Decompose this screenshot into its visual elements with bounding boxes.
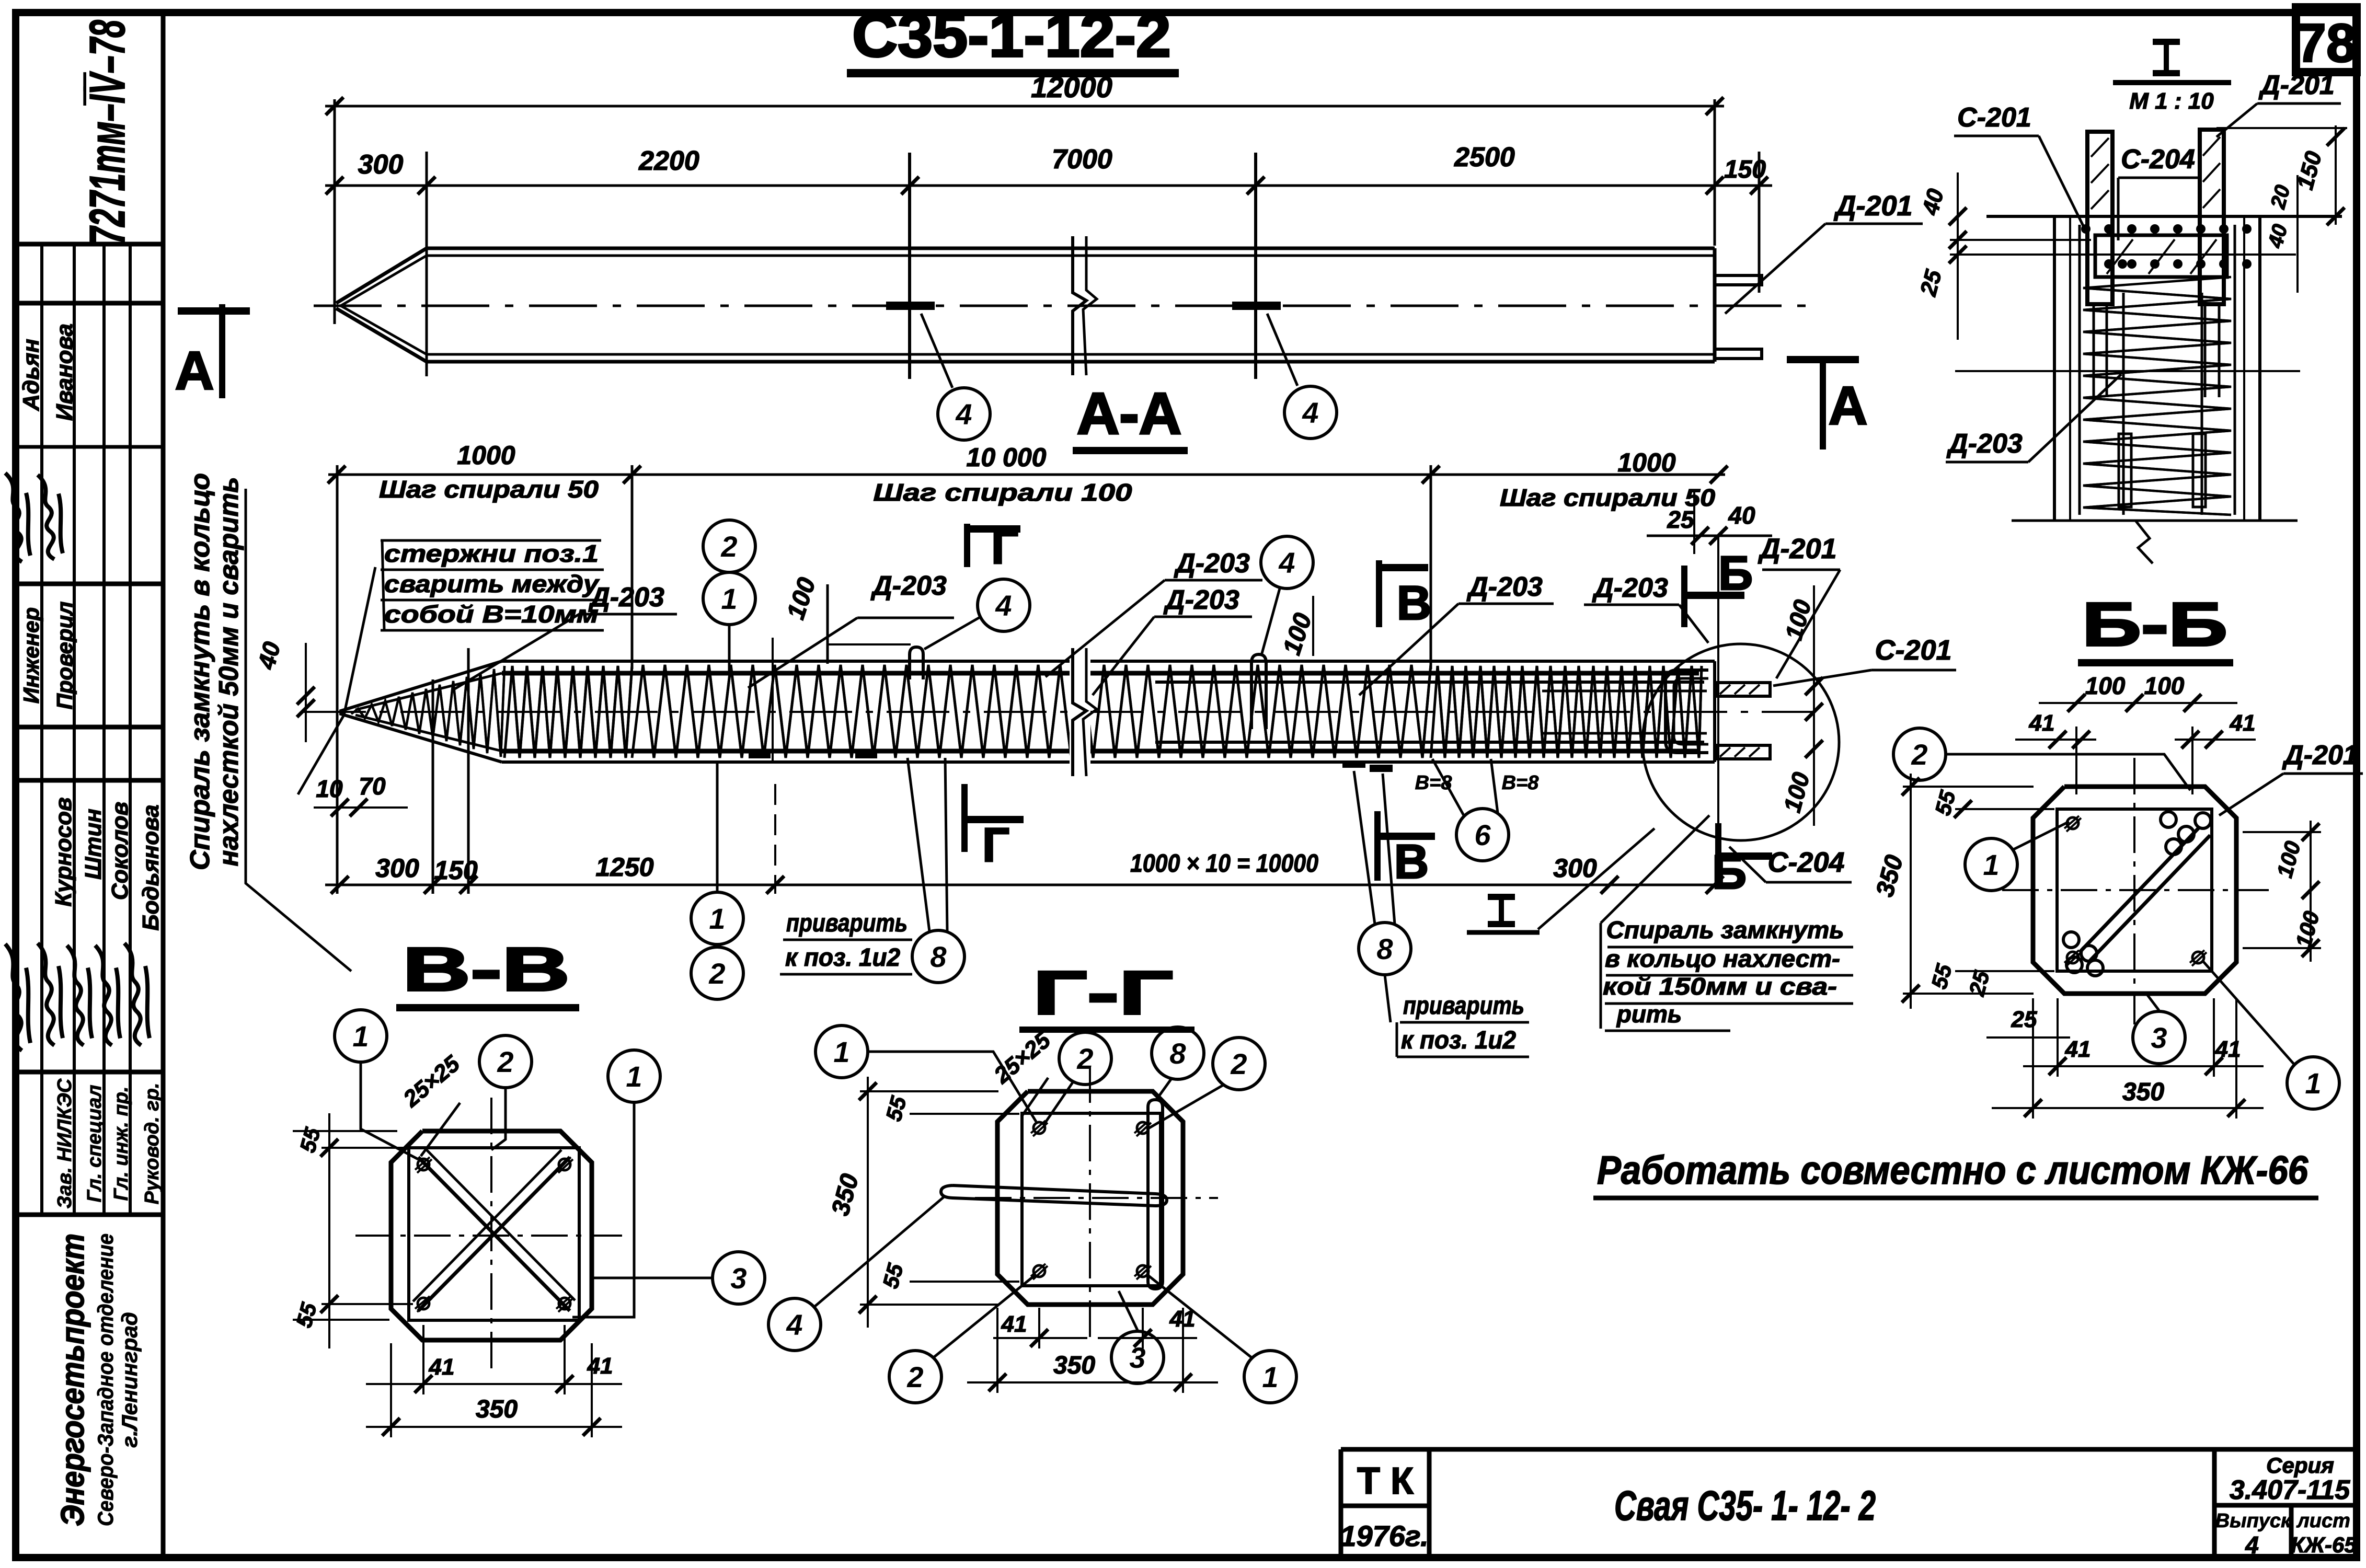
svg-text:1: 1 [2305, 1067, 2321, 1100]
svg-text:Д-203: Д-203 [588, 582, 664, 613]
svg-text:7000: 7000 [1052, 144, 1112, 175]
svg-text:В-В: В-В [403, 935, 570, 1004]
svg-text:А-А: А-А [1077, 381, 1181, 446]
svg-text:Иванова: Иванова [52, 324, 77, 421]
svg-text:Т К: Т К [1357, 1460, 1414, 1502]
svg-text:10 000: 10 000 [967, 443, 1047, 472]
svg-text:300: 300 [358, 149, 404, 180]
svg-text:Курносов: Курносов [51, 797, 76, 906]
svg-text:2: 2 [708, 957, 725, 990]
svg-text:1: 1 [626, 1060, 642, 1093]
svg-text:Выпуск: Выпуск [2215, 1510, 2292, 1532]
svg-text:41: 41 [2065, 1036, 2091, 1062]
svg-text:70: 70 [359, 773, 386, 800]
svg-text:41: 41 [2230, 710, 2256, 736]
svg-text:КЖ-65: КЖ-65 [2291, 1532, 2357, 1557]
svg-text:Инженер: Инженер [19, 607, 43, 704]
svg-text:8: 8 [1169, 1037, 1186, 1070]
svg-text:1: 1 [1262, 1361, 1278, 1393]
svg-text:Д-201: Д-201 [1758, 533, 1836, 564]
svg-text:1: 1 [833, 1035, 849, 1068]
svg-text:1976г.: 1976г. [1340, 1519, 1428, 1552]
svg-text:С-204: С-204 [2121, 144, 2195, 175]
svg-text:150: 150 [1724, 156, 1766, 183]
svg-text:Свая С35- 1- 12- 2: Свая С35- 1- 12- 2 [1614, 1482, 1876, 1529]
svg-text:Адьян: Адьян [18, 339, 44, 411]
svg-text:А: А [1828, 376, 1867, 436]
svg-text:Проверил: Проверил [52, 602, 77, 710]
svg-text:4: 4 [786, 1308, 802, 1341]
svg-text:40: 40 [1728, 502, 1755, 529]
svg-text:В=8: В=8 [1415, 772, 1453, 794]
svg-text:Д-203: Д-203 [1592, 573, 1668, 603]
svg-text:150: 150 [434, 856, 478, 885]
svg-text:Соколов: Соколов [107, 802, 133, 900]
svg-text:1000: 1000 [457, 441, 515, 470]
svg-text:4: 4 [995, 589, 1012, 622]
svg-text:8: 8 [930, 940, 947, 973]
svg-text:Шаг спирали 100: Шаг спирали 100 [874, 479, 1133, 506]
svg-text:приварить: приварить [786, 909, 908, 937]
svg-text:Спираль замкнуть в кольцо: Спираль замкнуть в кольцо [185, 473, 215, 870]
svg-text:Руковод. гр.: Руковод. гр. [141, 1083, 163, 1205]
svg-text:2: 2 [720, 530, 737, 563]
svg-text:Д-203: Д-203 [1174, 548, 1250, 579]
svg-text:В: В [1394, 835, 1429, 889]
svg-text:Работать совместно с листом: Работать совместно с листом КЖ-66 [1597, 1148, 2308, 1193]
svg-text:3: 3 [2151, 1021, 2167, 1054]
svg-text:41: 41 [1001, 1311, 1027, 1337]
svg-text:2500: 2500 [1454, 142, 1515, 172]
svg-text:Г: Г [991, 521, 1018, 574]
svg-text:350: 350 [1053, 1352, 1095, 1379]
svg-text:Б-Б: Б-Б [2082, 590, 2227, 659]
svg-text:Энергосетьпроект: Энергосетьпроект [55, 1233, 91, 1526]
svg-text:3: 3 [730, 1262, 746, 1295]
svg-text:Г: Г [982, 818, 1009, 872]
svg-text:лист: лист [2296, 1510, 2350, 1532]
svg-text:41: 41 [2029, 710, 2055, 736]
svg-text:4: 4 [2245, 1531, 2259, 1559]
svg-text:10: 10 [316, 775, 343, 802]
svg-text:7271тм–I̅V̅–78: 7271тм–I̅V̅–78 [79, 20, 135, 245]
svg-text:кой 150мм и сва-: кой 150мм и сва- [1603, 973, 1837, 1000]
svg-text:300: 300 [1553, 854, 1597, 883]
svg-text:нахлесткой 50мм и сварить: нахлесткой 50мм и сварить [214, 477, 244, 867]
svg-text:стержни поз.1: стержни поз.1 [384, 540, 599, 567]
svg-text:1: 1 [1983, 848, 1999, 881]
svg-text:Гл. инж. пр.: Гл. инж. пр. [110, 1087, 132, 1201]
svg-text:Д-203: Д-203 [1163, 585, 1239, 615]
svg-text:1250: 1250 [595, 852, 653, 882]
svg-text:к поз. 1и2: к поз. 1и2 [785, 944, 900, 972]
svg-text:2: 2 [497, 1045, 513, 1078]
svg-text:1000 × 10 = 10000: 1000 × 10 = 10000 [1130, 850, 1318, 878]
svg-text:350: 350 [2122, 1078, 2164, 1106]
svg-text:Гл. специал: Гл. специал [84, 1085, 106, 1202]
svg-text:собой В=10мм: собой В=10мм [384, 601, 599, 628]
svg-text:Д-203: Д-203 [1946, 429, 2023, 459]
svg-text:приварить: приварить [1403, 992, 1524, 1020]
svg-text:Б: Б [1718, 547, 1753, 600]
svg-text:78: 78 [2296, 13, 2357, 74]
svg-text:8: 8 [1376, 932, 1393, 965]
svg-text:1: 1 [721, 582, 737, 615]
svg-text:2: 2 [1076, 1042, 1093, 1075]
svg-text:В: В [1397, 577, 1431, 630]
svg-text:Спираль замкнуть: Спираль замкнуть [1606, 916, 1844, 943]
svg-text:1000: 1000 [1617, 448, 1675, 477]
svg-text:Д-201: Д-201 [2282, 740, 2358, 770]
svg-text:Д-203: Д-203 [870, 571, 947, 601]
svg-text:Б: Б [1712, 846, 1747, 899]
svg-text:6: 6 [1474, 818, 1491, 851]
svg-text:4: 4 [955, 398, 972, 431]
svg-text:Д-201: Д-201 [1833, 190, 1912, 222]
svg-text:100: 100 [2144, 672, 2185, 699]
svg-text:4: 4 [1302, 396, 1318, 429]
svg-text:4: 4 [1278, 546, 1295, 579]
svg-text:Д-203: Д-203 [1466, 572, 1543, 602]
svg-text:в кольцо нахлест-: в кольцо нахлест- [1605, 945, 1840, 972]
svg-text:100: 100 [2085, 672, 2126, 699]
svg-text:Северо-Западное отделение: Северо-Западное отделение [93, 1233, 118, 1526]
svg-text:М 1 : 10: М 1 : 10 [2129, 88, 2214, 114]
svg-text:Шаг спирали 50: Шаг спирали 50 [379, 476, 599, 503]
svg-text:25: 25 [1667, 506, 1695, 533]
svg-text:Серия: Серия [2266, 1453, 2334, 1478]
svg-text:С-201: С-201 [1875, 635, 1951, 666]
svg-text:сварить между: сварить между [384, 570, 600, 597]
svg-text:12000: 12000 [1031, 71, 1112, 103]
svg-text:1: 1 [709, 902, 725, 935]
svg-text:Бодьянова: Бодьянова [138, 804, 164, 930]
svg-text:В=8: В=8 [1502, 772, 1540, 794]
svg-text:2: 2 [906, 1361, 923, 1393]
svg-text:Д-201: Д-201 [2258, 70, 2335, 100]
svg-text:300: 300 [375, 854, 419, 883]
svg-text:С-201: С-201 [1957, 102, 2031, 133]
svg-text:1: 1 [352, 1020, 369, 1053]
svg-text:3.407-115: 3.407-115 [2230, 1475, 2350, 1505]
svg-text:2200: 2200 [638, 146, 699, 176]
svg-text:С-204: С-204 [1767, 847, 1844, 878]
svg-text:350: 350 [476, 1396, 518, 1423]
svg-text:2: 2 [1911, 738, 1927, 771]
svg-text:рить: рить [1616, 1000, 1682, 1028]
svg-text:41: 41 [429, 1354, 455, 1380]
svg-text:Зав. НИЛКЭС: Зав. НИЛКЭС [54, 1078, 76, 1208]
svg-text:к поз. 1и2: к поз. 1и2 [1401, 1027, 1516, 1054]
svg-text:А: А [175, 341, 214, 401]
svg-text:С35-1-12-2: С35-1-12-2 [852, 1, 1171, 70]
svg-text:Штин: Штин [81, 809, 106, 880]
svg-text:г.Ленинград: г.Ленинград [117, 1312, 142, 1448]
svg-text:2: 2 [1230, 1047, 1247, 1080]
svg-text:Г-Г: Г-Г [1033, 959, 1173, 1028]
